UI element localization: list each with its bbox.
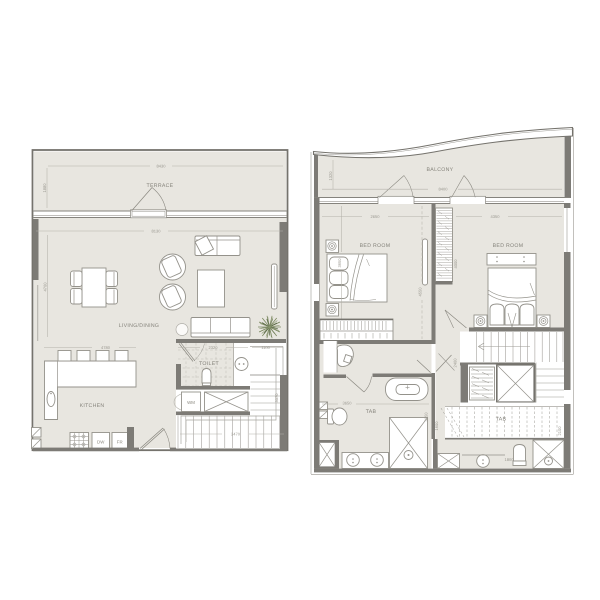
svg-text:1880: 1880	[42, 183, 47, 193]
svg-text:8400: 8400	[439, 187, 449, 192]
svg-text:4780: 4780	[101, 345, 111, 350]
svg-text:3650: 3650	[343, 401, 353, 406]
svg-text:2400: 2400	[453, 358, 458, 368]
svg-text:KITCHEN: KITCHEN	[80, 403, 105, 409]
svg-text:2100: 2100	[557, 426, 562, 436]
svg-text:3070: 3070	[274, 393, 279, 403]
svg-text:FR: FR	[117, 440, 123, 445]
svg-text:3050: 3050	[424, 412, 429, 422]
svg-text:LIVING/DINING: LIVING/DINING	[119, 323, 160, 329]
svg-text:8430: 8430	[157, 164, 167, 169]
svg-text:BALCONY: BALCONY	[427, 167, 454, 173]
svg-text:TAB: TAB	[366, 409, 377, 415]
svg-text:4350: 4350	[491, 214, 501, 219]
svg-text:2650: 2650	[371, 214, 381, 219]
svg-text:4550: 4550	[418, 287, 423, 297]
svg-text:1800: 1800	[505, 457, 515, 462]
svg-text:BED ROOM: BED ROOM	[493, 243, 524, 249]
svg-text:TERRACE: TERRACE	[147, 183, 174, 189]
svg-text:1320: 1320	[328, 171, 333, 181]
svg-text:1600: 1600	[434, 421, 439, 431]
svg-text:TAB: TAB	[496, 417, 507, 423]
svg-text:TOILET: TOILET	[199, 361, 219, 367]
svg-text:WM: WM	[187, 400, 195, 405]
svg-text:3470: 3470	[231, 432, 241, 437]
svg-text:8130: 8130	[152, 229, 162, 234]
svg-text:1100: 1100	[261, 345, 270, 350]
svg-text:4000: 4000	[453, 259, 458, 269]
svg-text:4700: 4700	[43, 282, 48, 292]
svg-text:3650: 3650	[337, 258, 342, 268]
svg-text:DW: DW	[97, 440, 105, 445]
svg-text:2320: 2320	[209, 345, 219, 350]
svg-text:BED ROOM: BED ROOM	[360, 243, 391, 249]
